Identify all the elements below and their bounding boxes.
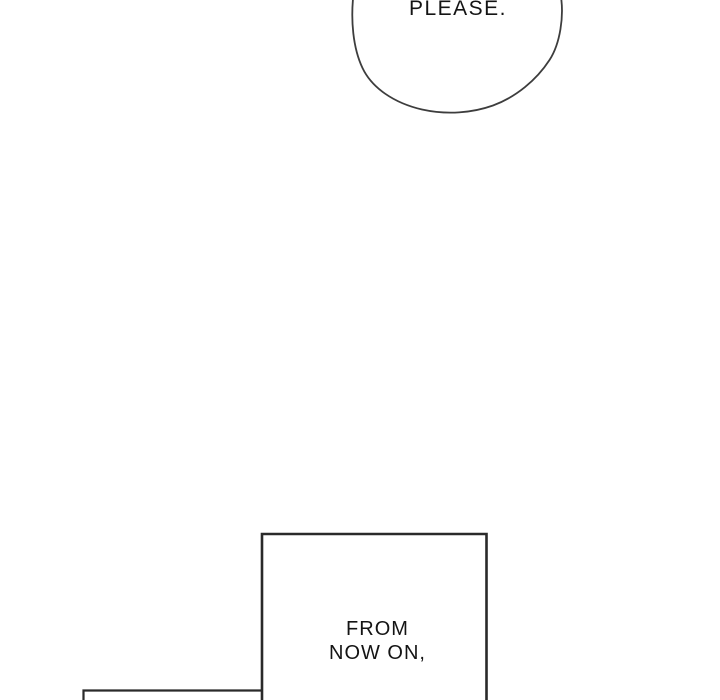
next-panel-outline: [84, 691, 263, 700]
speech-bubble-text: PLEASE.: [353, 0, 563, 22]
dialog-panel-line: FROM: [265, 617, 490, 641]
dialog-panel-text: FROM NOW ON,: [265, 617, 490, 665]
comic-page: PLEASE. FROM NOW ON,: [0, 0, 720, 700]
comic-line-art: [0, 0, 720, 700]
dialog-panel-line: NOW ON,: [265, 641, 490, 665]
